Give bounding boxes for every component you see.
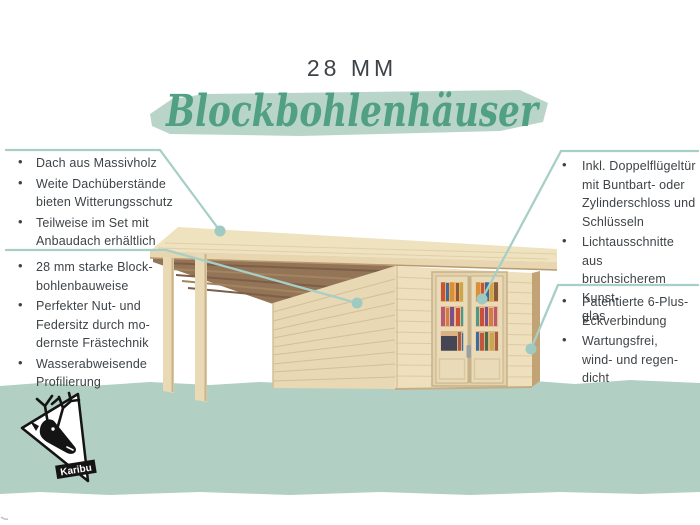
feature-text: Weite Dachüberstände bieten Witterungssc…: [36, 177, 173, 210]
stray-mark: [1, 517, 8, 519]
feature-text: Teilweise im Set mit Anbaudach erhältlic…: [36, 216, 156, 249]
product-infographic: 28 MM Blockbohlenhäuser: [0, 0, 700, 525]
feature-item: Patentierte 6-Plus- Eckverbindung: [558, 293, 698, 330]
feature-item: Inkl. Doppelflügeltür mit Buntbart- oder…: [558, 157, 698, 231]
feature-item: 28 mm starke Block- bohlenbauweise: [12, 258, 182, 295]
feature-text: Wasserabweisende Profilierung: [36, 357, 147, 390]
feature-item: Teilweise im Set mit Anbaudach erhältlic…: [12, 214, 182, 251]
feature-text: Wartungsfrei, wind- und regen- dicht: [582, 334, 678, 385]
feature-group-construction: Patentierte 6-Plus- Eckverbindung Wartun…: [558, 293, 698, 390]
feature-group-roof: Dach aus Massivholz Weite Dachüberstände…: [12, 154, 182, 253]
feature-text: Dach aus Massivholz: [36, 156, 157, 170]
feature-item: Wartungsfrei, wind- und regen- dicht: [558, 332, 698, 388]
garden-house-illustration: [150, 227, 557, 402]
feature-item: Weite Dachüberstände bieten Witterungssc…: [12, 175, 182, 212]
feature-item: Dach aus Massivholz: [12, 154, 182, 173]
double-door: [432, 272, 507, 386]
feature-text: 28 mm starke Block- bohlenbauweise: [36, 260, 153, 293]
door-handle: [467, 345, 472, 358]
feature-text: Perfekter Nut- und Federsitz durch mo- d…: [36, 299, 150, 350]
feature-item: Wasserabweisende Profilierung: [12, 355, 182, 392]
feature-group-walls: 28 mm starke Block- bohlenbauweise Perfe…: [12, 258, 182, 394]
feature-text: Patentierte 6-Plus- Eckverbindung: [582, 295, 688, 328]
feature-item: Perfekter Nut- und Federsitz durch mo- d…: [12, 297, 182, 353]
feature-text: Inkl. Doppelflügeltür mit Buntbart- oder…: [582, 159, 696, 229]
script-title: Blockbohlenhäuser: [164, 86, 540, 137]
ground-band: [0, 380, 700, 495]
size-label: 28 MM: [307, 55, 397, 81]
